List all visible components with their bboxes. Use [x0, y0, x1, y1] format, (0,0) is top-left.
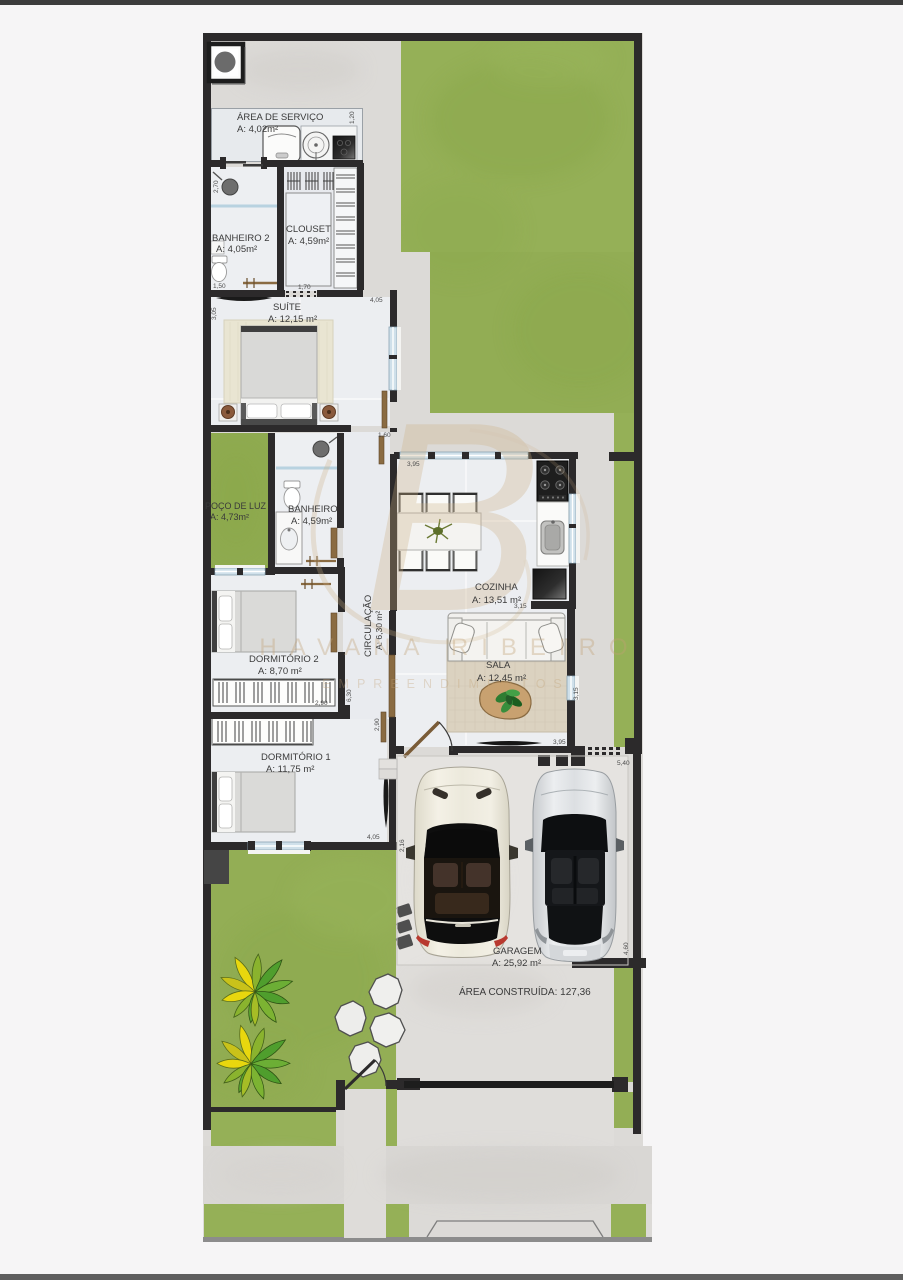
svg-text:A: 4,73m²: A: 4,73m² — [210, 512, 249, 522]
svg-text:A: 11,75 m²: A: 11,75 m² — [266, 764, 314, 775]
svg-text:A: 12,15 m²: A: 12,15 m² — [268, 314, 317, 325]
svg-text:BANHEIRO 2: BANHEIRO 2 — [212, 233, 270, 244]
svg-text:3,95: 3,95 — [407, 461, 420, 468]
svg-text:ÁREA DE SERVIÇO: ÁREA DE SERVIÇO — [237, 112, 323, 123]
svg-text:A: 6,30 m²: A: 6,30 m² — [374, 611, 384, 650]
svg-text:1,50: 1,50 — [213, 283, 226, 290]
svg-text:SALA: SALA — [486, 660, 511, 671]
svg-text:4,05: 4,05 — [367, 834, 380, 841]
svg-text:1,60: 1,60 — [378, 432, 391, 439]
svg-text:ÁREA CONSTRUÍDA: 127,36: ÁREA CONSTRUÍDA: 127,36 — [459, 985, 591, 998]
svg-text:1,70: 1,70 — [298, 284, 311, 291]
svg-text:BANHEIRO: BANHEIRO — [288, 504, 338, 515]
svg-text:CLOUSET: CLOUSET — [286, 224, 331, 235]
svg-text:4,60: 4,60 — [623, 942, 630, 955]
svg-text:A: 4,59m²: A: 4,59m² — [288, 236, 329, 247]
svg-text:A: 8,70 m²: A: 8,70 m² — [258, 666, 302, 677]
svg-text:3,05: 3,05 — [211, 307, 218, 320]
svg-text:B: B — [362, 367, 542, 668]
svg-text:A: 4,02m²: A: 4,02m² — [237, 124, 278, 135]
svg-text:GARAGEM: GARAGEM — [493, 946, 542, 957]
svg-text:2,16: 2,16 — [399, 839, 406, 852]
svg-text:3,95: 3,95 — [553, 739, 566, 746]
svg-text:2,90: 2,90 — [315, 700, 328, 707]
svg-text:A: 25,92 m²: A: 25,92 m² — [492, 958, 541, 969]
svg-text:POÇO DE LUZ: POÇO DE LUZ — [205, 501, 267, 511]
svg-text:EMPREENDIMENTOS: EMPREENDIMENTOS — [322, 677, 570, 691]
svg-text:1,20: 1,20 — [349, 111, 356, 124]
svg-text:CIRCULAÇÃO: CIRCULAÇÃO — [363, 595, 374, 657]
svg-text:3,15: 3,15 — [514, 603, 527, 610]
svg-text:6,30: 6,30 — [346, 689, 353, 702]
svg-text:3,15: 3,15 — [573, 687, 580, 700]
svg-text:5,40: 5,40 — [617, 760, 630, 767]
svg-text:SUÍTE: SUÍTE — [273, 302, 301, 313]
svg-text:A: 4,59m²: A: 4,59m² — [291, 516, 332, 527]
svg-text:2,70: 2,70 — [213, 180, 220, 193]
svg-text:COZINHA: COZINHA — [475, 582, 518, 593]
svg-text:DORMITÓRIO 1: DORMITÓRIO 1 — [261, 752, 331, 763]
svg-text:4,05: 4,05 — [370, 297, 383, 304]
svg-text:2,90: 2,90 — [374, 718, 381, 731]
svg-text:A: 4,05m²: A: 4,05m² — [216, 244, 257, 255]
svg-text:A: 12,45 m²: A: 12,45 m² — [477, 673, 526, 684]
svg-text:DORMITÓRIO 2: DORMITÓRIO 2 — [249, 654, 319, 665]
